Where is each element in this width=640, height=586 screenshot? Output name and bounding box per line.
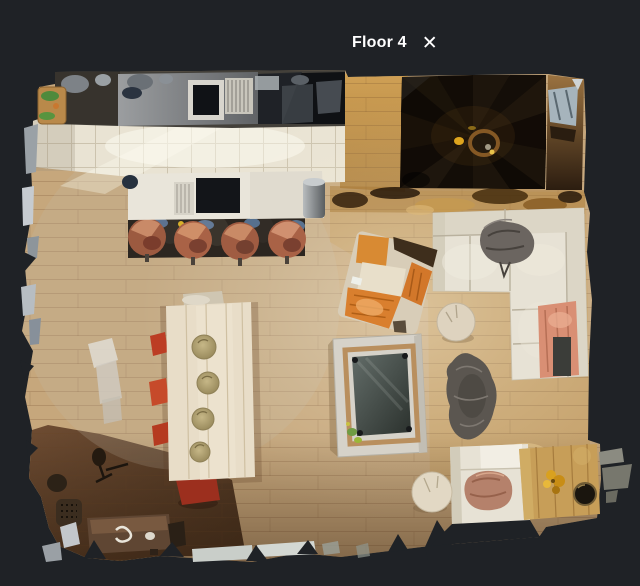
- fur-pillow: [464, 471, 512, 510]
- floor-header: Floor 4 ✕: [352, 33, 438, 53]
- floor-title: Floor 4: [352, 33, 407, 53]
- fire-table: [328, 334, 427, 457]
- vegetable-basket: [38, 87, 66, 124]
- stump-table-1: [437, 303, 475, 343]
- bowl: [574, 483, 596, 505]
- close-button[interactable]: ✕: [422, 33, 438, 53]
- kitchen-counter: [38, 70, 345, 128]
- island-cooktop: [196, 178, 240, 213]
- kitchen-island: [122, 171, 325, 266]
- drying-rack: [225, 78, 253, 114]
- close-icon: ✕: [422, 32, 438, 54]
- dining-table: [149, 291, 262, 509]
- floorplan-view: Floor 4 ✕: [0, 0, 640, 586]
- stair-side-wall: [546, 75, 584, 190]
- floorplan-canvas[interactable]: [0, 0, 640, 586]
- stump-table-2: [412, 472, 452, 513]
- lounge-chair: [450, 444, 530, 524]
- side-table: [519, 444, 600, 520]
- dark-cushion: [553, 337, 571, 376]
- trash-bin: [303, 178, 325, 218]
